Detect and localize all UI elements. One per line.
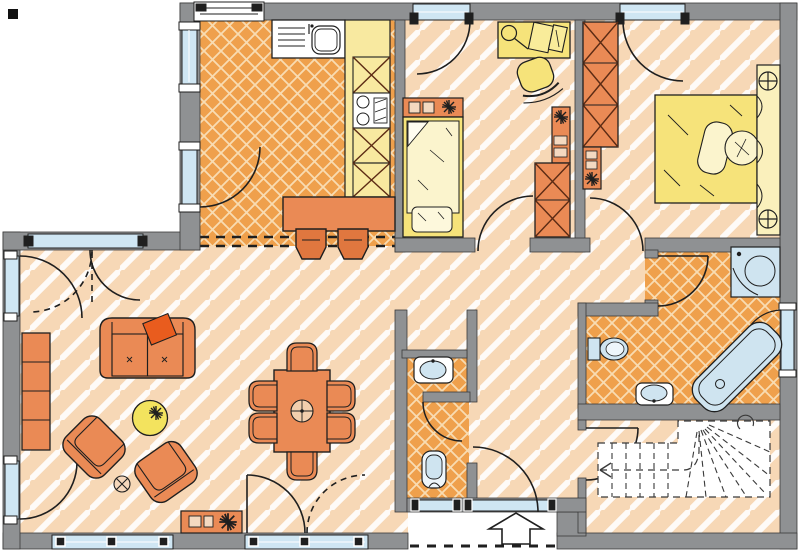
shelf-unit	[22, 333, 50, 450]
black-square-marker	[8, 9, 18, 19]
washbasin	[414, 357, 453, 383]
bar-stool	[338, 229, 368, 259]
living-left-lower-door	[4, 456, 19, 524]
dining-chair	[287, 452, 317, 480]
floor-plan-canvas	[0, 0, 800, 552]
sink-bowl	[312, 26, 340, 54]
single-bed	[403, 117, 463, 237]
wardrobe-x	[583, 22, 618, 147]
headboard	[757, 65, 780, 235]
toilet	[588, 338, 628, 360]
nightstand	[403, 98, 463, 117]
dining-chair	[327, 381, 355, 411]
sofa	[100, 314, 195, 378]
living-top-double-door	[24, 234, 147, 248]
dining-table	[274, 370, 330, 452]
shelf	[552, 107, 570, 163]
shelf	[583, 147, 601, 189]
wc-window	[411, 499, 461, 511]
kitchen-side-door	[179, 142, 200, 212]
sink-unit	[272, 20, 345, 58]
double-bed	[655, 95, 759, 203]
cooktop	[353, 93, 390, 128]
kitchen-top-window	[194, 2, 264, 21]
plant-icon	[149, 406, 163, 420]
reading-lamp-icon	[759, 72, 777, 90]
dining-chair	[327, 413, 355, 443]
entrance-porch	[408, 512, 566, 552]
dining-chair	[249, 413, 277, 443]
dining-chair	[287, 343, 317, 371]
washbasin	[636, 383, 673, 405]
dining-chair	[249, 381, 277, 411]
plant-icon	[219, 513, 237, 531]
wardrobe-x	[535, 163, 570, 237]
living-left-upper-door	[4, 251, 19, 321]
entrance-door	[464, 499, 556, 511]
toilet	[422, 451, 446, 488]
kitchen-side-window	[179, 22, 200, 92]
living-bottom-window	[52, 535, 173, 549]
lowboard	[181, 511, 242, 533]
flower-icon	[114, 476, 130, 492]
reading-lamp-icon	[759, 210, 777, 228]
bar-stool	[296, 229, 326, 259]
floor-plan-drawing	[0, 0, 800, 552]
pillow	[412, 207, 452, 232]
plant-icon	[442, 100, 456, 114]
terrace-double-door-bottom	[245, 535, 368, 549]
coffee-table	[133, 401, 168, 436]
breakfast-bar	[283, 197, 395, 231]
corner-shower	[731, 247, 780, 297]
plant-icon	[585, 172, 599, 186]
plant-icon	[554, 110, 568, 124]
papers	[528, 22, 567, 53]
